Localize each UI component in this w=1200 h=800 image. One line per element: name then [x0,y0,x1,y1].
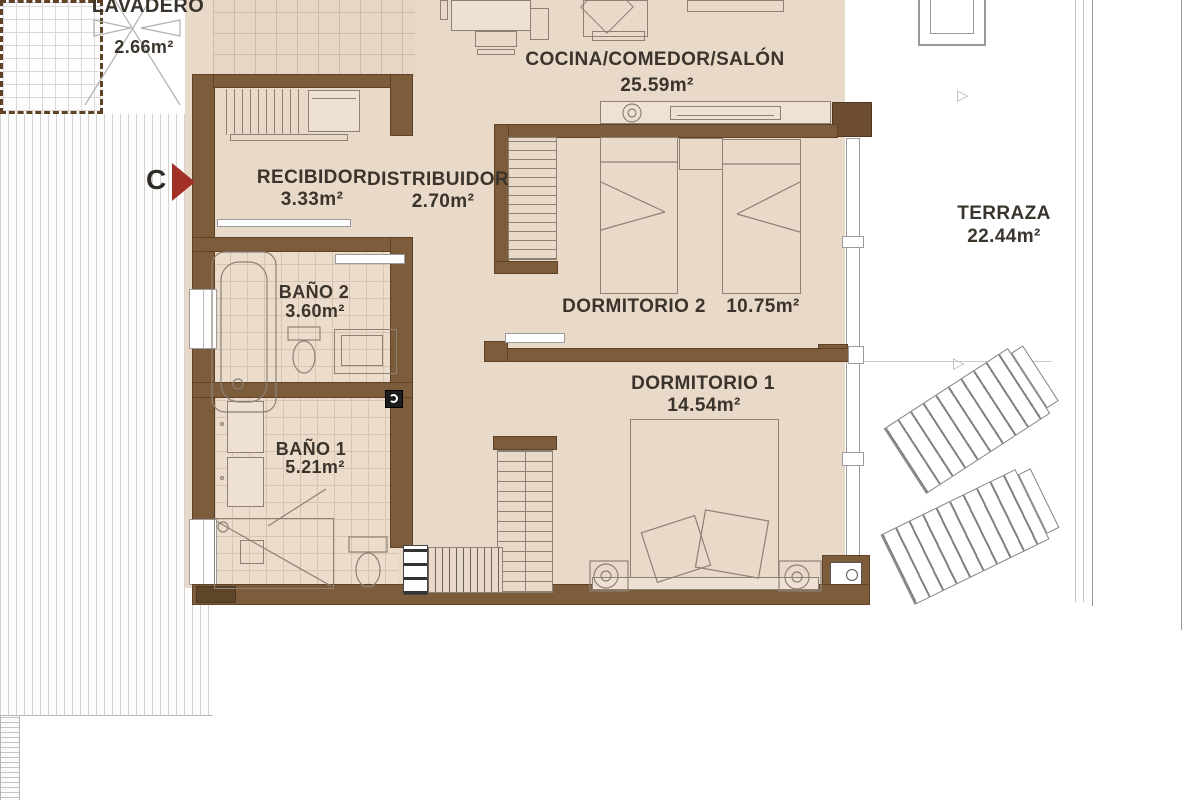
room-area-recibidor: 3.33m² [281,190,344,210]
sofa [687,0,784,12]
room-label-cocina: COCINA/COMEDOR/SALÓN [525,50,784,70]
bath-divider-wall [192,382,413,398]
floor-plan: ▷ ▷ [0,0,1200,800]
utility-closet-wall [213,74,413,88]
tray [670,106,781,120]
coat-closet [226,89,302,135]
room-area-cocina: 25.59m² [620,76,694,96]
window-jamb [842,452,864,466]
door-leaf [505,333,565,343]
bedroom2-wall [494,124,838,138]
room-label-dormitorio1: DORMITORIO 1 [631,374,775,394]
duct-shaft [403,545,428,595]
bedroom2-wall [494,261,558,274]
ac-fan-icon [846,569,858,581]
chair [530,8,549,40]
shower [214,518,334,589]
room-label-recibidor: RECIBIDOR [257,168,367,188]
room-label-bano2: BAÑO 2 [279,283,349,302]
room-label-terraza: TERRAZA [957,204,1051,224]
chair [477,49,515,55]
sliding-door-track [217,219,351,227]
closet-edge [230,134,348,141]
bedroom-divider-wall [484,348,864,362]
headboard [592,577,819,590]
tray-line [677,115,774,116]
lounger-headrest [1011,345,1059,408]
room-area-dormitorio1: 14.54m² [667,396,741,416]
section-marker-arrow-icon [172,163,195,201]
room-label-distribuidor: DISTRIBUIDOR [367,170,509,190]
hall-closet [427,547,503,593]
room-label-lavadero: LAVADERO [92,0,204,17]
room-area-bano1: 5.21m² [285,458,344,477]
room-area-distribuidor: 2.70m² [412,192,475,212]
bedroom2-wall [494,124,509,274]
washer-lid-line [312,98,356,99]
wardrobe-bedroom1 [497,450,553,593]
single-bed [600,137,678,294]
double-bed [630,419,779,588]
bath1-sink [227,401,264,453]
chair [475,31,517,47]
bath1-sink [227,457,264,507]
utility-symbol [385,390,403,408]
dining-table [451,0,531,31]
armchair-base [592,31,645,41]
room-area-dormitorio2: 10.75m² [726,297,800,317]
window-jamb [842,236,864,248]
utility-closet-wall [390,74,413,136]
slope-arrow-icon: ▷ [957,86,969,104]
laundry-area [0,0,103,114]
terrace-edge-line [1075,0,1084,602]
room-area-bano2: 3.60m² [285,302,344,321]
bath2-wall [192,237,413,252]
nightstand [679,138,723,170]
door-leaf [335,254,405,264]
window-jamb [848,346,864,364]
utility-symbol-icon [389,394,398,403]
single-bed [722,139,801,294]
window [189,519,217,585]
room-area-lavadero: 2.66m² [114,38,173,57]
wall-pillar [832,102,872,137]
lounger-headrest [1018,468,1060,533]
terrace-drain-channel [0,716,20,800]
room-label-dormitorio2: DORMITORIO 2 [562,297,706,317]
terrace-railing-line [1092,0,1093,606]
bath2-sink [341,335,383,366]
shower-drain [240,540,264,564]
kitchen-tile-floor [213,0,415,76]
plan-outer-boundary-line [1181,0,1182,630]
section-marker-label: C [146,164,166,196]
chair [440,0,448,20]
slope-arrow-icon: ▷ [953,354,965,372]
window [189,289,217,349]
terrace-planter-inner [930,0,974,34]
room-area-terraza: 22.44m² [967,227,1041,247]
sun-lounger [880,469,1049,605]
wardrobe-bedroom2 [508,137,557,260]
closet-wall-cap [493,436,557,450]
door-jamb [484,341,508,362]
washing-machine [308,90,360,132]
terrace-decking [0,114,212,716]
